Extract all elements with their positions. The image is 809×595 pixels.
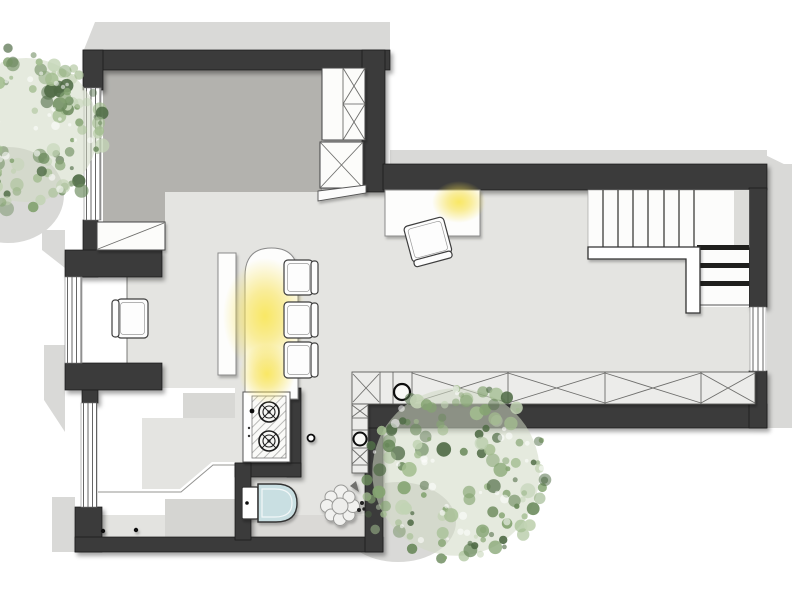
- toilet-tank: [242, 487, 258, 519]
- bar-stool-3: [284, 342, 318, 378]
- wall-right-wing-top: [383, 164, 767, 190]
- seat: [284, 302, 313, 338]
- shadow-right-wing-top: [390, 150, 767, 164]
- dresser: [97, 222, 165, 250]
- toilet-bowl: [258, 484, 297, 522]
- backrest: [311, 343, 318, 377]
- cooktop-knob: [248, 435, 250, 437]
- wall-right-upper: [749, 188, 767, 307]
- window-stairs: [750, 307, 766, 371]
- toilet: [242, 484, 297, 522]
- stair-winder-area: [697, 247, 749, 307]
- backrest: [311, 261, 318, 294]
- shadow-right-side: [767, 164, 792, 428]
- backrest: [311, 303, 318, 337]
- wall-bay-bottom: [65, 363, 162, 390]
- shadow-left-corner: [52, 497, 75, 552]
- window-bay: [65, 277, 82, 363]
- backrest: [112, 300, 119, 337]
- armchair: [112, 299, 148, 338]
- shadow-left-lower: [44, 345, 65, 432]
- floor-dot-2: [134, 528, 138, 532]
- shadow-top-left-wing: [83, 22, 390, 52]
- wall-bottom: [75, 537, 383, 552]
- floor-plan-drawing: [0, 0, 809, 595]
- shadow-left-upper: [42, 230, 65, 268]
- stair-upper-run: [588, 190, 749, 247]
- bar-stool-1: [284, 260, 318, 295]
- ceiling-light-dot: [308, 435, 315, 442]
- sink-small: [354, 433, 367, 446]
- cooktop-dot: [250, 409, 255, 414]
- burner-2: [259, 431, 279, 451]
- cooktop-knob: [248, 427, 250, 429]
- bar-stool-2: [284, 302, 318, 338]
- floor-dot-1: [101, 529, 105, 533]
- floor-plan: [0, 0, 809, 595]
- entry-dark-patch: [165, 499, 237, 537]
- wardrobe-cabinet: [320, 142, 363, 188]
- seat: [284, 342, 313, 378]
- wall-left-upper: [83, 50, 103, 90]
- kitchen-counter-leg: [352, 404, 368, 473]
- stair-wall-shade: [734, 190, 749, 247]
- seat: [284, 260, 313, 295]
- wall-bay-top: [65, 250, 162, 277]
- seat: [117, 299, 148, 338]
- window-entry: [81, 403, 97, 507]
- burner-1: [259, 402, 279, 422]
- wall-top: [83, 50, 390, 70]
- wall-left-stub: [82, 390, 98, 403]
- wardrobe: [322, 68, 365, 140]
